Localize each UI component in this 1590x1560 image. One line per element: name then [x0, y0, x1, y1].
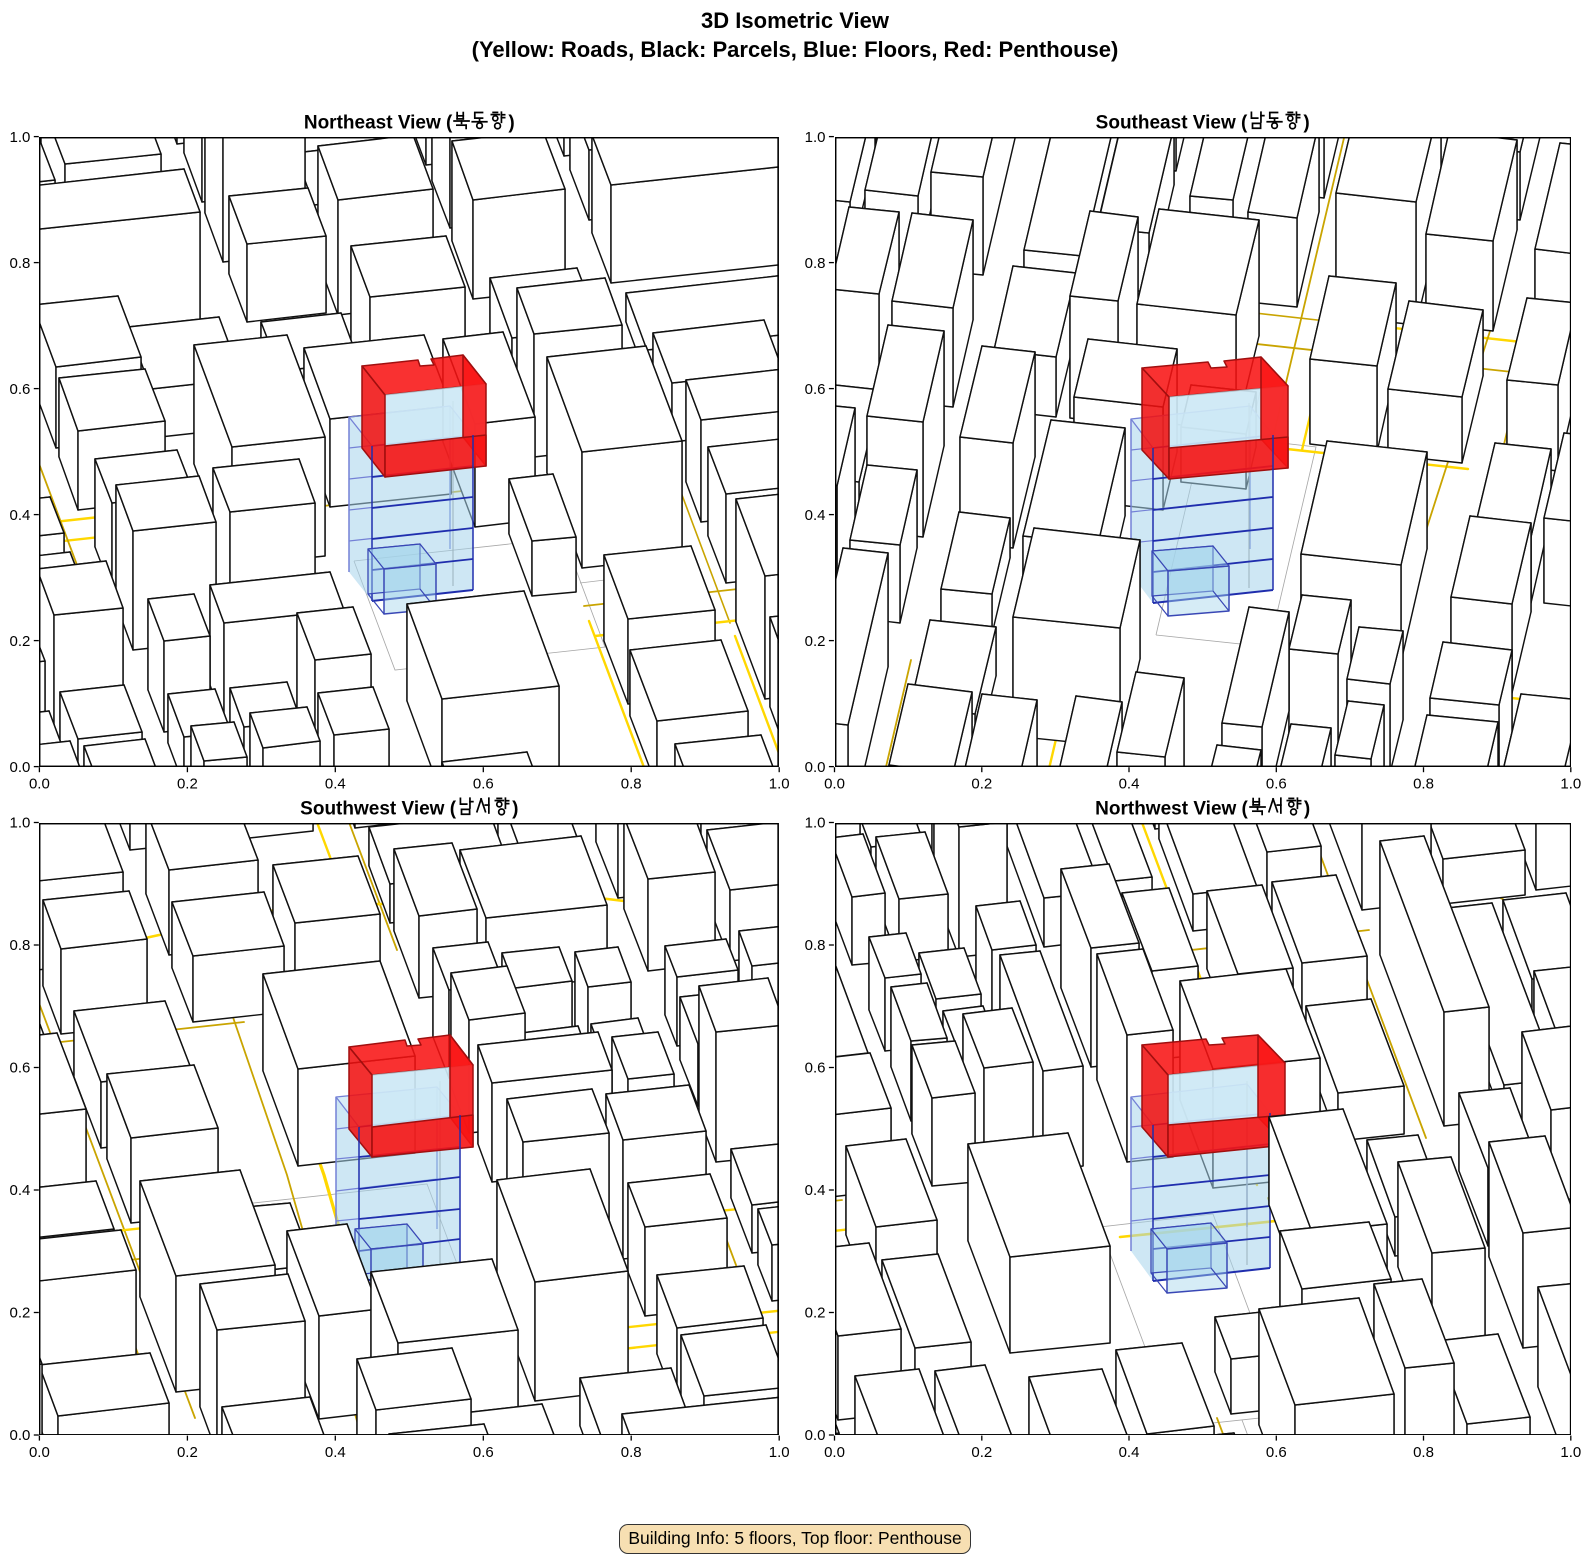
svg-text:0.6: 0.6 [805, 381, 826, 398]
svg-text:0.2: 0.2 [177, 1444, 198, 1461]
svg-text:0.0: 0.0 [824, 776, 845, 793]
svg-text:0.2: 0.2 [10, 1305, 31, 1322]
svg-text:1.0: 1.0 [805, 815, 826, 832]
svg-text:0.8: 0.8 [621, 776, 642, 793]
svg-text:1.0: 1.0 [10, 129, 31, 146]
svg-text:0.0: 0.0 [805, 1427, 826, 1444]
svg-text:0.4: 0.4 [805, 1182, 826, 1199]
svg-text:1.0: 1.0 [769, 776, 790, 793]
svg-text:0.0: 0.0 [10, 1427, 31, 1444]
svg-text:0.2: 0.2 [971, 776, 992, 793]
svg-text:1.0: 1.0 [805, 129, 826, 146]
svg-text:0.8: 0.8 [10, 255, 31, 272]
svg-text:1.0: 1.0 [1560, 1444, 1581, 1461]
svg-text:0.6: 0.6 [473, 1444, 494, 1461]
svg-text:0.0: 0.0 [805, 759, 826, 776]
svg-text:0.2: 0.2 [177, 776, 198, 793]
svg-text:0.2: 0.2 [10, 633, 31, 650]
svg-text:0.4: 0.4 [1119, 776, 1140, 793]
svg-text:1.0: 1.0 [10, 815, 31, 832]
svg-text:0.0: 0.0 [824, 1444, 845, 1461]
svg-text:0.6: 0.6 [1266, 776, 1287, 793]
svg-text:0.6: 0.6 [473, 776, 494, 793]
svg-text:0.2: 0.2 [805, 1305, 826, 1322]
svg-text:0.6: 0.6 [10, 1060, 31, 1077]
svg-text:1.0: 1.0 [1560, 776, 1581, 793]
svg-text:0.8: 0.8 [1413, 776, 1434, 793]
svg-text:0.8: 0.8 [805, 255, 826, 272]
svg-text:0.0: 0.0 [10, 759, 31, 776]
svg-text:1.0: 1.0 [769, 1444, 790, 1461]
svg-text:0.8: 0.8 [10, 937, 31, 954]
svg-text:0.4: 0.4 [10, 1182, 31, 1199]
svg-text:0.4: 0.4 [325, 1444, 346, 1461]
svg-text:0.8: 0.8 [1413, 1444, 1434, 1461]
svg-text:0.4: 0.4 [10, 507, 31, 524]
svg-text:0.8: 0.8 [621, 1444, 642, 1461]
svg-text:0.2: 0.2 [805, 633, 826, 650]
svg-text:0.0: 0.0 [29, 776, 50, 793]
svg-text:0.2: 0.2 [971, 1444, 992, 1461]
svg-text:0.6: 0.6 [805, 1060, 826, 1077]
svg-text:0.4: 0.4 [325, 776, 346, 793]
svg-text:0.6: 0.6 [1266, 1444, 1287, 1461]
svg-text:0.0: 0.0 [29, 1444, 50, 1461]
svg-text:0.4: 0.4 [805, 507, 826, 524]
svg-text:0.8: 0.8 [805, 937, 826, 954]
svg-text:0.6: 0.6 [10, 381, 31, 398]
svg-text:0.4: 0.4 [1119, 1444, 1140, 1461]
